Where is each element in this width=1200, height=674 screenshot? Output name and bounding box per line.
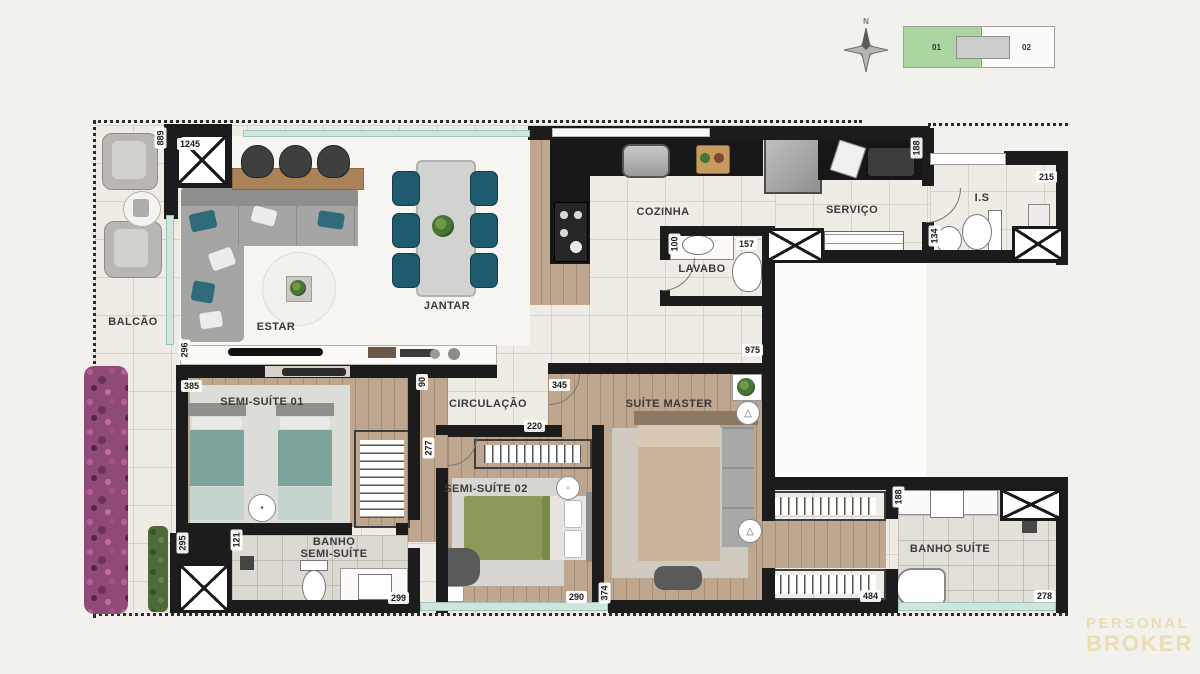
bar-stool-2: [279, 145, 312, 178]
cutting-board-icon: [696, 145, 730, 174]
ss1-bed1-foot: [190, 487, 244, 520]
label-semi-suite-01: SEMI-SUÍTE 01: [220, 396, 303, 408]
dining-table-plant-icon: [432, 215, 454, 237]
dim-889-balcao: 889: [155, 127, 167, 148]
master-closet-top: [762, 491, 886, 521]
wall-ss2-left-a: [436, 425, 448, 435]
label-lavabo: LAVABO: [678, 263, 725, 275]
keyplan: 01 02: [903, 26, 1055, 68]
balcony-armchair-1-seat: [112, 141, 146, 179]
keyplan-unit-02-label: 02: [1022, 43, 1031, 52]
bar-stool-1: [241, 145, 274, 178]
master-plant-icon: [737, 378, 755, 396]
bs-bathtub-icon: [896, 568, 946, 606]
dim-296-console: 296: [179, 339, 191, 360]
dim-188-banho-suite: 188: [893, 486, 905, 507]
ss2-throw: [542, 496, 550, 560]
hedge: [148, 526, 168, 612]
label-banho-semi-suite-line1: BANHO: [301, 536, 368, 548]
master-bench: [654, 566, 702, 590]
balcony-table-decor: [133, 199, 149, 217]
ss2-duvet: [464, 496, 542, 560]
lavabo-sink-icon: [682, 235, 714, 255]
bs-sink-icon: [930, 490, 964, 518]
closet-corridor-floor: [762, 521, 886, 568]
dim-188-servico: 188: [911, 137, 923, 158]
dim-277-hall: 277: [423, 437, 435, 458]
boundary-top: [93, 120, 862, 127]
is-stool-icon: [1028, 204, 1050, 228]
label-servico: SERVIÇO: [826, 204, 878, 216]
exterior-notch: [775, 263, 926, 477]
wall-lavabo-bottom: [660, 296, 770, 306]
label-banho-semi-suite: BANHO SEMI-SUÍTE: [301, 536, 368, 560]
compass-rose-icon: N: [836, 14, 896, 85]
ss1-lamp-icon: •: [248, 494, 276, 522]
dim-100-lavabo: 100: [669, 233, 681, 254]
ss1-bed2-foot: [278, 487, 332, 520]
ss2-pillow-a: [564, 500, 582, 528]
ss1-bed1-pillow: [192, 417, 242, 429]
master-icon-a: △: [736, 401, 760, 425]
personal-broker-watermark: PERSONAL BROKER: [1086, 616, 1193, 655]
dim-90-pass: 90: [416, 374, 428, 390]
dining-chair-4: [470, 171, 498, 206]
keyplan-unit-01-label: 01: [932, 43, 941, 52]
ss2-bottom-window: [420, 602, 608, 611]
dining-chair-6: [470, 253, 498, 288]
dining-chair-1: [392, 171, 420, 206]
boundary-bottom: [93, 613, 1068, 620]
kitchen-cabinet: [550, 262, 590, 305]
master-icon-b: △: [738, 519, 762, 543]
bss-sink-icon: [358, 574, 392, 600]
label-balcao: BALCÃO: [108, 316, 157, 328]
dim-295-shaft: 295: [177, 532, 189, 553]
label-banho-semi-suite-line2: SEMI-SUÍTE: [301, 548, 368, 560]
ss1-bed2-pillow: [280, 417, 330, 429]
coffee-table-plant-icon: [290, 280, 306, 296]
ss1-sliding-door: [282, 368, 346, 376]
washer-icon: [764, 132, 822, 194]
kitchen-wood-strip: [528, 136, 550, 305]
ss2-wardrobe: [474, 439, 592, 469]
kitchen-sink-icon: [622, 144, 670, 178]
cushion-3: [317, 210, 345, 229]
flower-bed: [84, 366, 128, 614]
dim-1245-social: 1245: [177, 138, 203, 150]
banho-suite-shower-x: [1000, 488, 1062, 521]
dim-215-is: 215: [1036, 171, 1057, 183]
dim-278-banho-suite: 278: [1034, 590, 1055, 602]
master-sheet-fold: [638, 425, 720, 447]
ss1-wardrobe: [354, 430, 410, 528]
is-shower-x: [1012, 226, 1064, 262]
dim-374-ss2: 374: [599, 582, 611, 603]
stove-icon: [554, 202, 588, 262]
watermark-line2: BROKER: [1086, 632, 1193, 655]
bss-shower-knob: [240, 556, 254, 570]
wall-ss1-banho-a: [188, 523, 352, 535]
is-toilet-icon: [962, 214, 992, 250]
compass-north-text: N: [863, 17, 869, 26]
wall-wing-div-b: [886, 569, 898, 613]
dim-345-master: 345: [549, 379, 570, 391]
balcony-window: [166, 215, 174, 345]
estar-top-window: [243, 130, 530, 137]
is-window: [930, 153, 1006, 165]
dim-220-ss2: 220: [524, 420, 545, 432]
label-circulacao: CIRCULAÇÃO: [449, 398, 527, 410]
console-knob-a: [430, 349, 440, 359]
cushion-5: [190, 280, 215, 304]
console-decor-a: [368, 347, 396, 358]
ss2-fan-icon: ◦: [556, 476, 580, 500]
kitchen-window-sill: [552, 128, 710, 137]
dim-299-banho-ss: 299: [388, 592, 409, 604]
tv-icon: [228, 348, 323, 356]
dim-134-is: 134: [929, 225, 941, 246]
console-decor-b: [400, 349, 434, 357]
servico-cabinet-x: [766, 228, 824, 263]
watermark-line1: PERSONAL: [1086, 616, 1193, 632]
dim-290-ss2: 290: [566, 591, 587, 603]
console-knob-b: [448, 348, 460, 360]
label-jantar: JANTAR: [424, 300, 470, 312]
dim-121-banho-ss: 121: [231, 529, 243, 550]
label-suite-master: SUÍTE MASTER: [626, 398, 713, 410]
laundry-tank-icon: [866, 146, 916, 178]
bs-shower-knob: [1022, 520, 1037, 533]
shaft-x-bottomleft: [178, 563, 230, 613]
keyplan-core: [956, 36, 1010, 59]
dim-975-corridor: 975: [742, 344, 763, 356]
bar-stool-3: [317, 145, 350, 178]
ss2-pillow-b: [564, 530, 582, 558]
label-cozinha: COZINHA: [637, 206, 690, 218]
bss-toilet-icon: [302, 570, 326, 604]
label-banho-suite: BANHO SUÍTE: [910, 543, 990, 555]
boundary-top-right: [928, 123, 1068, 130]
wall-ss2-master: [592, 425, 604, 602]
dim-484-closet: 484: [860, 590, 881, 602]
label-semi-suite-02: SEMI-SUÍTE 02: [444, 483, 527, 495]
dining-chair-5: [470, 213, 498, 248]
banho-suite-bottom-window: [898, 602, 1056, 611]
floor-plan: • ◦ △ △ BALCÃO ESTAR JANTAR COZINHA LAVA…: [0, 0, 1200, 674]
cushion-6: [199, 311, 223, 330]
dim-157-lavabo: 157: [736, 238, 757, 250]
wall-ss1-banho-b: [396, 523, 408, 535]
wall-bottom-b: [608, 600, 898, 613]
ss1-bed1-blanket: [190, 430, 244, 486]
dining-chair-3: [392, 253, 420, 288]
dining-chair-2: [392, 213, 420, 248]
ss1-bed2-blanket: [278, 430, 332, 486]
wall-master-top: [548, 363, 766, 374]
dim-385-ss1: 385: [181, 380, 202, 392]
balcony-armchair-2-seat: [114, 229, 148, 267]
label-estar: ESTAR: [257, 321, 295, 333]
label-is: I.S: [975, 192, 990, 204]
lavabo-toilet-icon: [732, 252, 762, 292]
